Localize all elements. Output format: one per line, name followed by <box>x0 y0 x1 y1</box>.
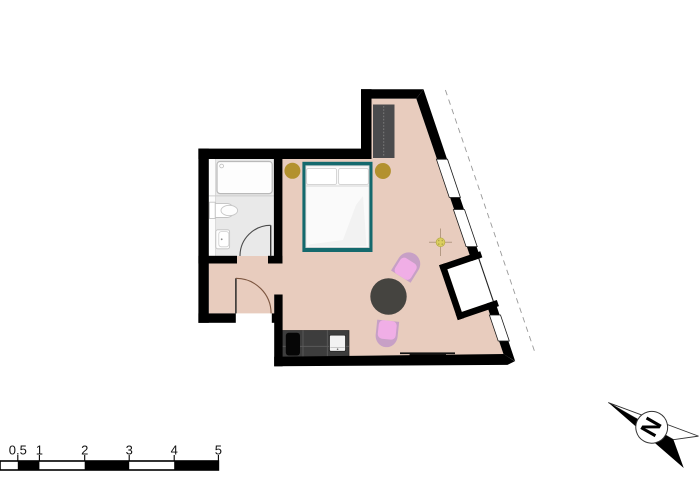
svg-text:4: 4 <box>171 443 178 458</box>
svg-text:1: 1 <box>36 443 43 458</box>
svg-text:3: 3 <box>126 443 133 458</box>
svg-text:5: 5 <box>215 443 222 458</box>
svg-text:0.5: 0.5 <box>9 443 27 458</box>
svg-text:2: 2 <box>81 443 88 458</box>
